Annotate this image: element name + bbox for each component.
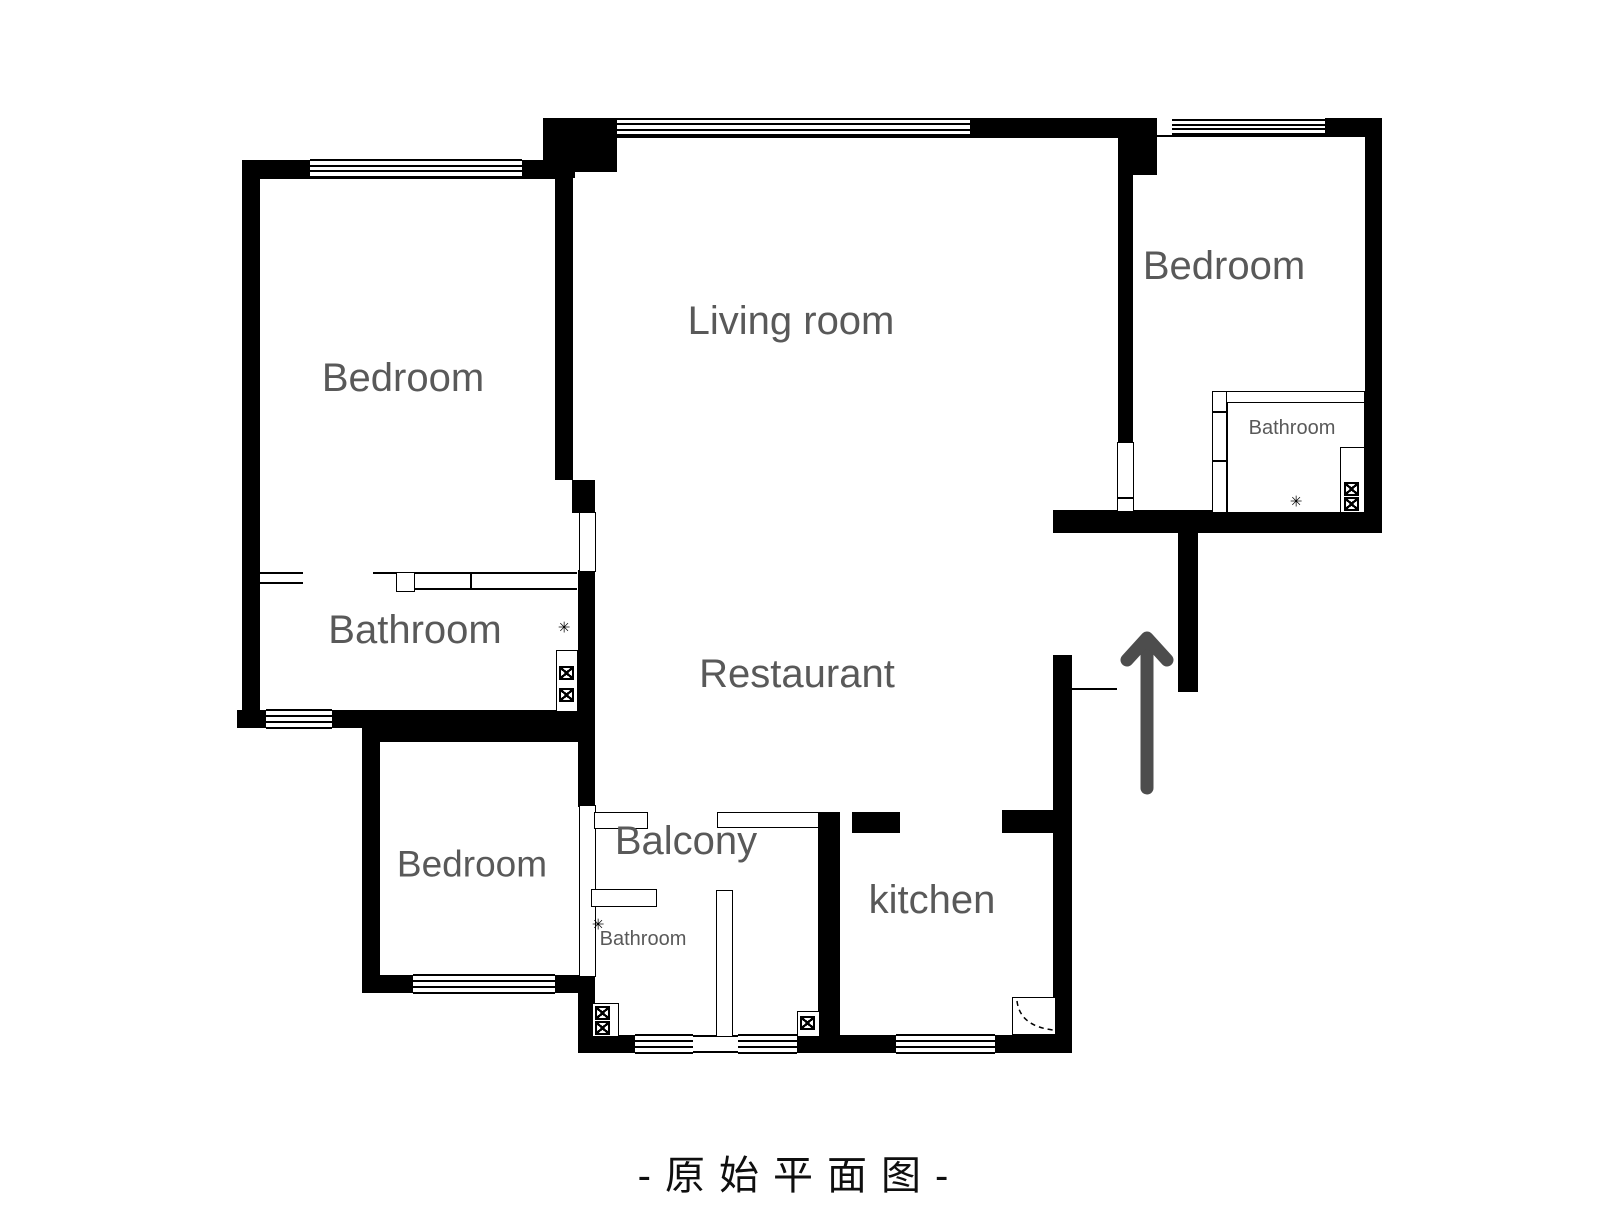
room-label-living-room: Living room <box>688 301 895 341</box>
door-swing-line <box>1072 688 1117 690</box>
wall <box>1118 118 1157 175</box>
wall <box>242 160 260 728</box>
wall <box>572 480 595 513</box>
bathroom-partition <box>716 890 733 1037</box>
balcony-door-panel <box>591 889 657 907</box>
bathroom-door-column <box>1212 391 1227 513</box>
wall-inner-edge <box>1133 135 1365 137</box>
room-label-bathroom-balcony: Bathroom <box>600 929 687 949</box>
room-label-bedroom-bottom: Bedroom <box>397 846 547 883</box>
wall <box>818 812 840 1053</box>
wall <box>1118 175 1133 442</box>
room-label-kitchen: kitchen <box>869 880 996 920</box>
valve-icon <box>595 1021 610 1035</box>
room-label-restaurant: Restaurant <box>699 654 895 694</box>
window <box>635 1034 693 1054</box>
valve-icon <box>800 1016 815 1030</box>
wall <box>578 742 595 807</box>
shower-head-icon: ✳ <box>558 621 571 636</box>
entry-arrow-icon <box>1118 626 1178 796</box>
wall <box>970 118 1118 136</box>
floor-plan: ✳ ✳ ✳ Bedroom Living room Bedroom Bathro… <box>0 0 1607 1227</box>
wall <box>852 812 900 833</box>
fixture-box <box>556 650 578 712</box>
wall <box>1365 118 1382 533</box>
kitchen-door <box>1012 997 1056 1035</box>
wall <box>555 136 573 480</box>
wall <box>362 713 380 993</box>
valve-icon <box>1344 482 1359 496</box>
room-label-bathroom-left: Bathroom <box>328 610 501 650</box>
wall-inner-edge <box>260 177 555 179</box>
door-step <box>396 572 415 592</box>
partition-line <box>470 572 472 590</box>
door-arc <box>1013 998 1055 1034</box>
window <box>1172 119 1325 135</box>
window <box>413 974 555 994</box>
window <box>738 1034 797 1054</box>
partition-line <box>415 588 577 590</box>
window <box>266 709 332 729</box>
window <box>310 159 522 178</box>
valve-icon <box>559 688 574 702</box>
wall <box>1178 533 1198 692</box>
window <box>896 1034 995 1054</box>
partition-line <box>258 572 303 574</box>
room-label-bathroom-right: Bathroom <box>1249 418 1336 438</box>
wall <box>1053 655 1072 1053</box>
window <box>617 118 970 136</box>
room-label-bedroom-top-left: Bedroom <box>322 358 484 398</box>
wall <box>1002 810 1057 833</box>
shower-head-icon: ✳ <box>1290 495 1303 510</box>
room-label-balcony: Balcony <box>615 821 757 861</box>
room-label-bedroom-right: Bedroom <box>1143 246 1305 286</box>
wall <box>1053 510 1382 533</box>
valve-icon <box>1344 497 1359 511</box>
door-leaf <box>1117 442 1134 512</box>
wall-inner-edge <box>573 136 1118 138</box>
wall <box>578 570 595 712</box>
door-leaf <box>579 512 596 572</box>
balcony-door-sill <box>693 1037 738 1051</box>
valve-icon <box>595 1006 610 1020</box>
partition-line <box>258 582 303 584</box>
valve-icon <box>559 666 574 680</box>
wall <box>362 710 595 742</box>
caption: -原始平面图- <box>638 1143 963 1201</box>
